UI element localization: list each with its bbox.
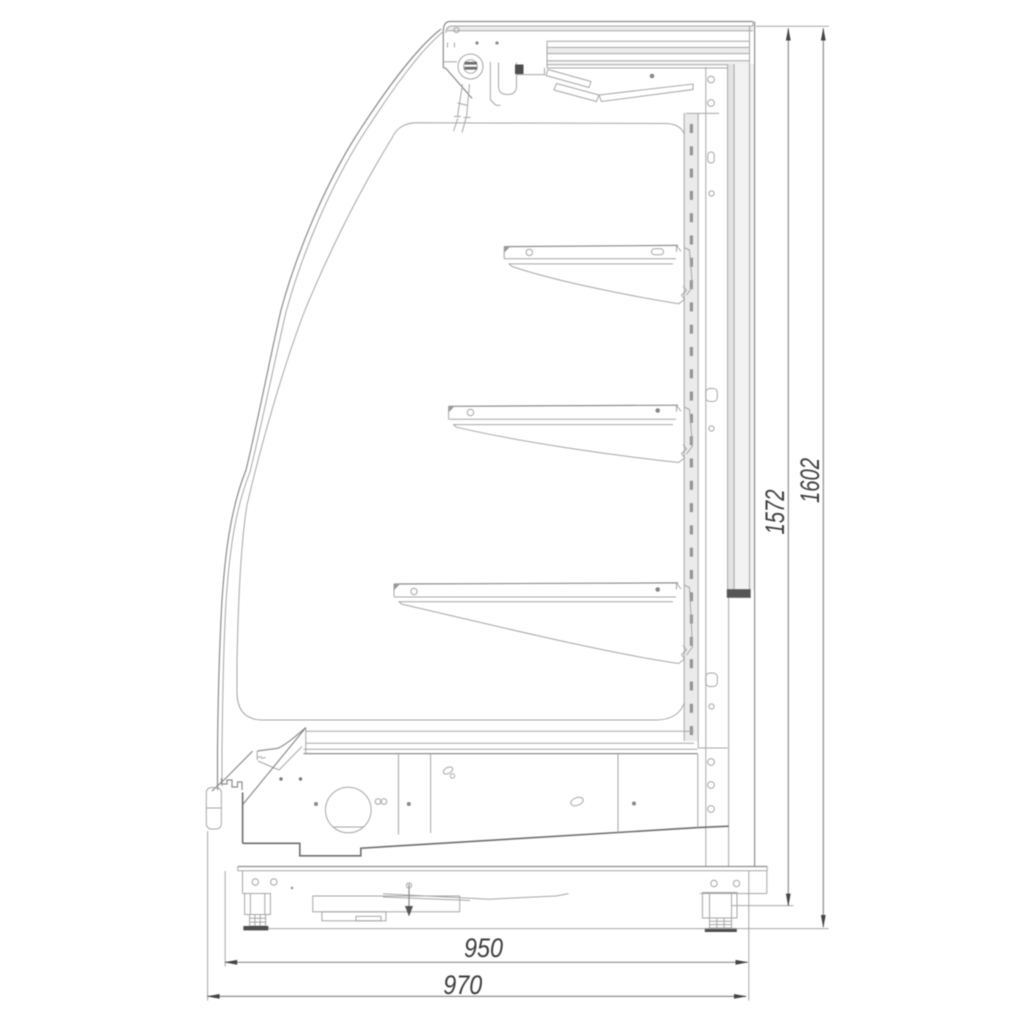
svg-text:1602: 1602	[795, 458, 825, 503]
svg-text:970: 970	[443, 970, 482, 1000]
svg-text:1572: 1572	[760, 490, 790, 535]
svg-text:950: 950	[464, 933, 503, 963]
